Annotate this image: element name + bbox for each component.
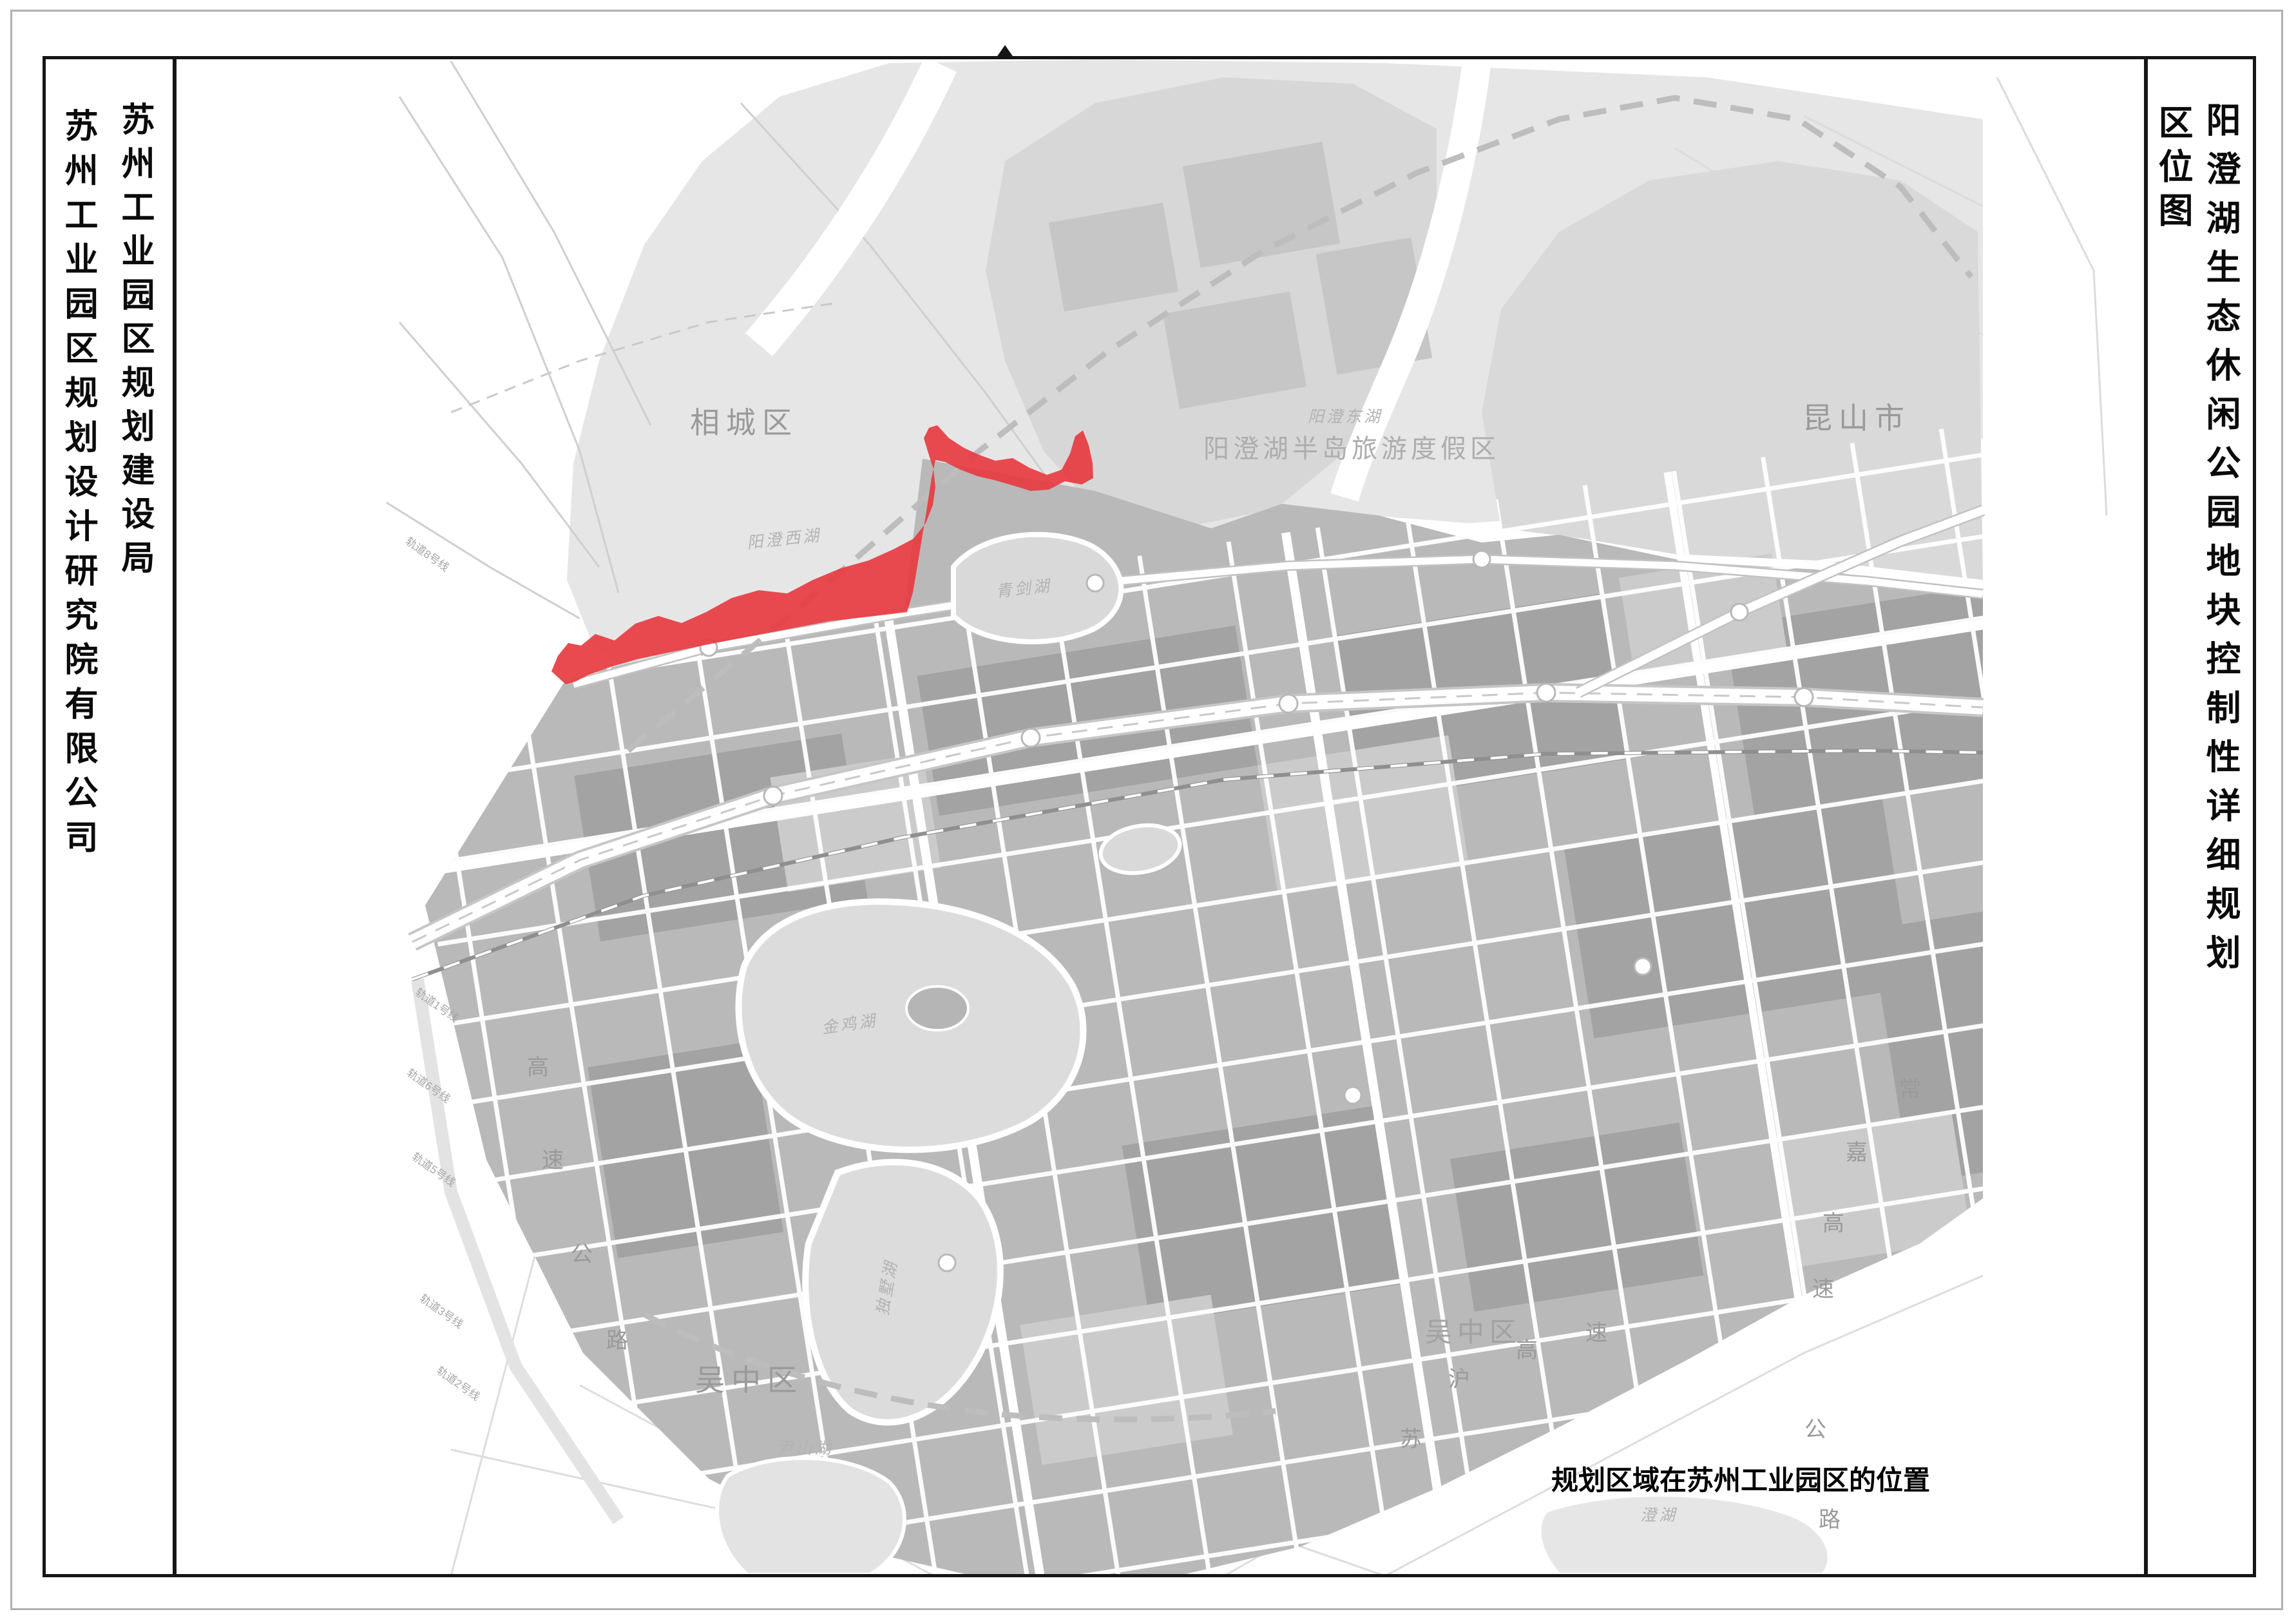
plan-sheet: { "left_panel": { "org1": "苏州工业园区规划建设局",…: [0, 0, 2296, 1623]
left-panel-divider: [173, 56, 177, 1577]
org-name-institute: 苏州工业园区规划设计研究院有限公司: [61, 108, 94, 864]
project-title: 阳澄湖生态休闲公园地块控制性详细规划: [2203, 102, 2237, 983]
title-block-frame: [43, 56, 2256, 1577]
org-name-bureau: 苏州工业园区规划建设局: [117, 102, 151, 584]
right-panel-divider: [2144, 56, 2148, 1577]
sheet-name: 区位图: [2155, 104, 2190, 236]
